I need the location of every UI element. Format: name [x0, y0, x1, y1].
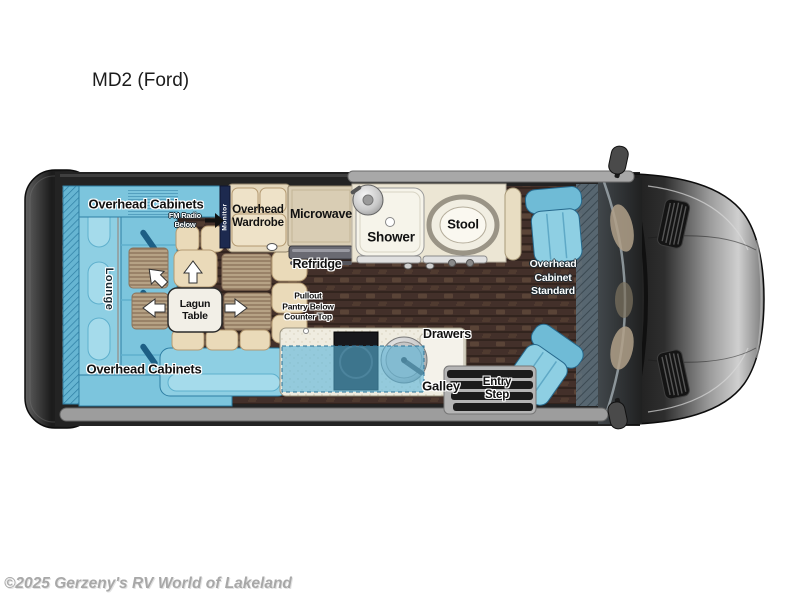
bathroom	[350, 184, 521, 269]
label-refridge: Refridge	[292, 257, 341, 271]
label-fm-radio: FM Radio Below	[169, 211, 201, 229]
label-monitor: Monitor	[222, 203, 229, 230]
label-pullout-pantry: Pullout Pantry Below Counter Top	[282, 290, 333, 322]
label-overhead-wardrobe: Overhead Wardrobe	[232, 204, 284, 230]
label-stool: Stool	[447, 217, 479, 232]
label-shower: Shower	[367, 230, 415, 245]
van-floorplan-illustration	[0, 0, 800, 600]
label-overhead-cabinets-bottom: Overhead Cabinets	[86, 362, 201, 377]
label-lagun-table: Lagun Table	[180, 298, 211, 322]
label-entry-step: Entry Step	[483, 376, 511, 402]
van-hood	[622, 174, 764, 424]
label-galley: Galley	[422, 379, 460, 394]
passenger-seat	[525, 186, 587, 265]
copyright-watermark: ©2025 Gerzeny's RV World of Lakeland	[4, 575, 292, 593]
shower-drain-icon	[386, 218, 395, 227]
floorplan-page: MD2 (Ford)	[0, 0, 800, 600]
label-drawers: Drawers	[423, 327, 471, 341]
label-overhead-cabinet-standard: Overhead Cabinet Standard	[530, 258, 577, 299]
label-microwave: Microwave	[290, 207, 352, 221]
label-lounge: Lounge	[103, 268, 115, 311]
label-overhead-cabinets-top: Overhead Cabinets	[88, 197, 203, 212]
roof-rail	[348, 171, 634, 182]
